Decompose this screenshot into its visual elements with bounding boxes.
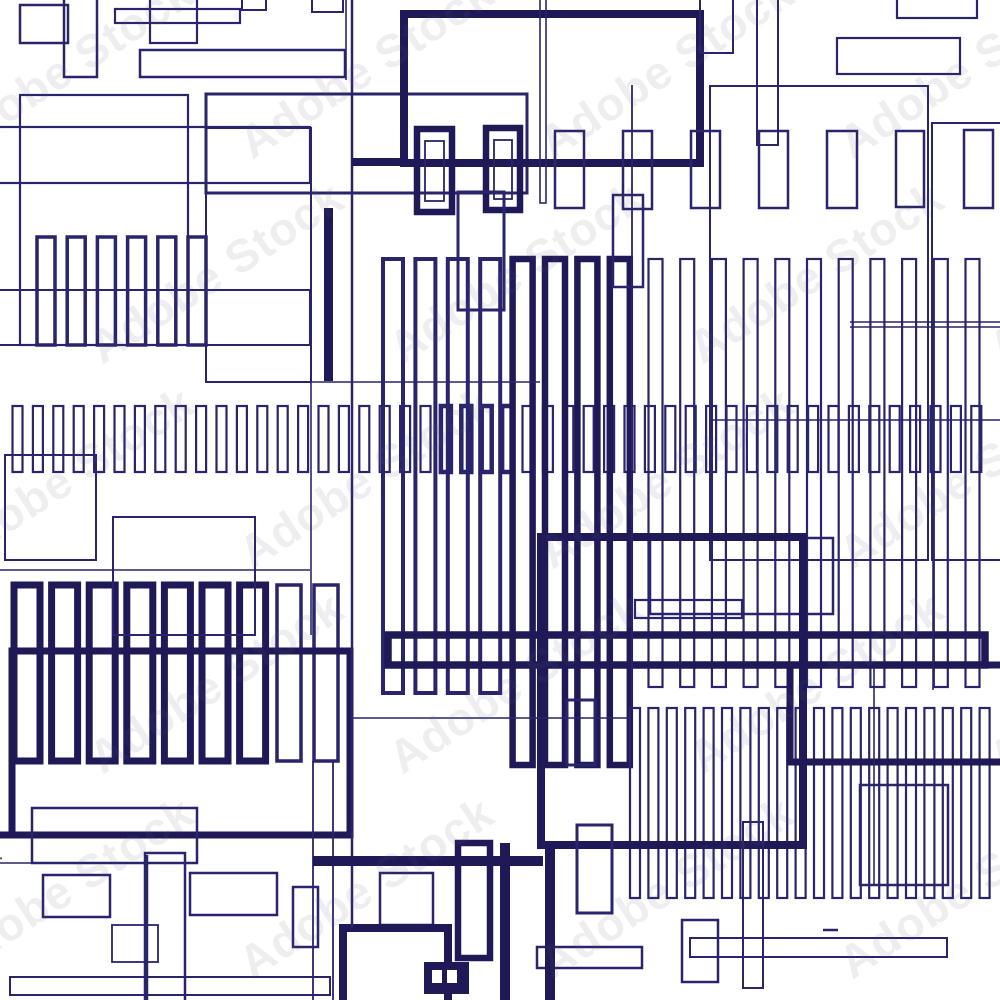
adobe-stock-credit: Adobe Stock | #250414884 bbox=[0, 721, 3, 998]
abstract-pattern-image: Adobe StockAdobe StockAdobe StockAdobe S… bbox=[0, 0, 1000, 1000]
geometric-line-art bbox=[0, 0, 1000, 1000]
